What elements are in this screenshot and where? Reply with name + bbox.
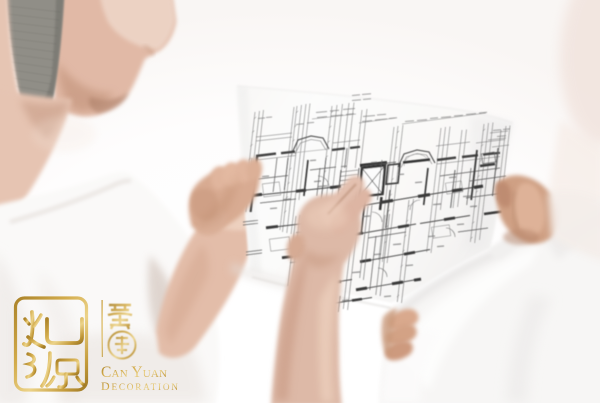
svg-text:DECORATION: DECORATION bbox=[101, 379, 180, 393]
